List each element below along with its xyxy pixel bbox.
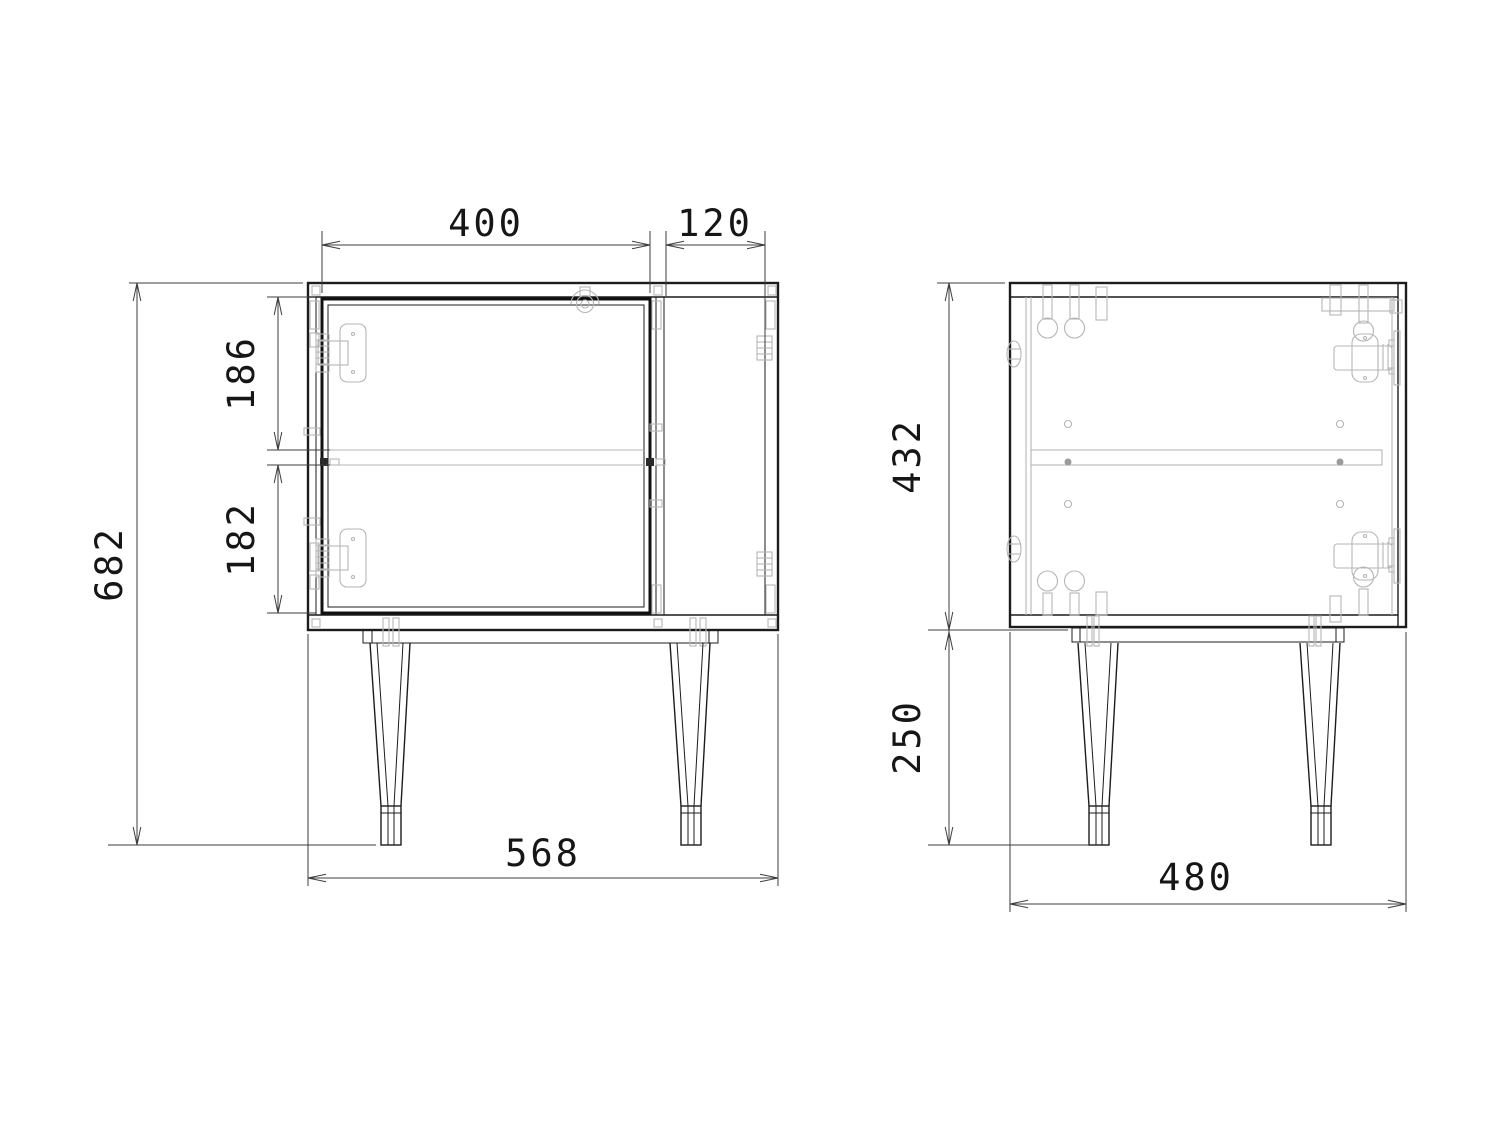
cabinet-door [322, 299, 650, 613]
dim-label-carcass-height: 432 [886, 418, 929, 494]
dimension-leg-height: 250 [886, 630, 1089, 845]
dim-label-upper-compartment: 186 [220, 335, 263, 411]
dimension-lower-compartment: 182 [220, 465, 330, 613]
dim-label-overall-depth: 480 [1158, 856, 1234, 899]
side-carcass [1010, 283, 1406, 627]
front-leg-left [370, 643, 410, 845]
side-leg-right [1300, 643, 1340, 845]
dim-label-overall-width: 568 [505, 832, 581, 875]
shelf-hidden-side [1031, 421, 1382, 508]
dimension-door-width: 400 [322, 202, 650, 293]
dim-label-overall-height: 682 [88, 526, 131, 602]
side-hinge-plate-bottom [1334, 529, 1400, 583]
front-carcass [308, 283, 778, 630]
dim-label-lower-compartment: 182 [220, 501, 263, 577]
dimension-open-section-width: 120 [666, 202, 765, 345]
front-plinth [363, 618, 718, 646]
shelf-hidden-front [320, 450, 665, 466]
drawing-canvas: 400 120 682 186 182 [0, 0, 1500, 1125]
side-plinth [1072, 616, 1344, 646]
dim-label-open-section-width: 120 [677, 202, 753, 245]
front-fasteners [304, 286, 776, 627]
front-view [304, 283, 778, 845]
side-fasteners-bottom [1038, 567, 1374, 622]
technical-drawing: 400 120 682 186 182 [0, 0, 1500, 1125]
side-hinge-plate-top [1334, 331, 1400, 385]
side-view [1007, 283, 1406, 845]
front-leg-right [670, 643, 710, 845]
side-leg-left [1078, 643, 1118, 845]
dim-label-door-width: 400 [448, 202, 524, 245]
dimension-upper-compartment: 186 [220, 297, 330, 450]
dim-label-leg-height: 250 [886, 699, 929, 775]
dimension-overall-depth: 480 [1010, 632, 1406, 912]
side-fasteners-top [1038, 285, 1403, 341]
